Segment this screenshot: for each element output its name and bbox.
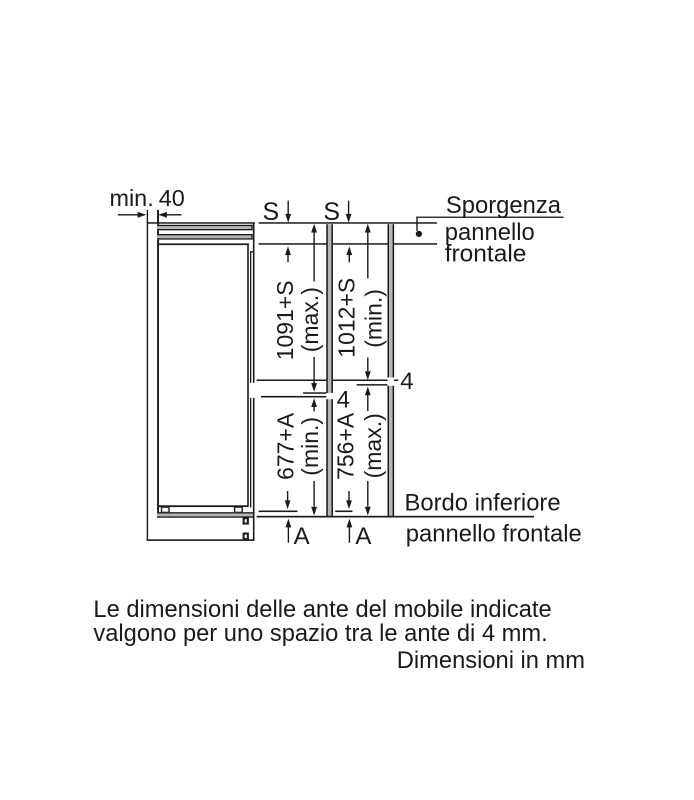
svg-text:Le dimensioni delle ante del m: Le dimensioni delle ante del mobile indi… [93,597,551,623]
svg-text:Dimensioni in mm: Dimensioni in mm [397,648,585,674]
svg-text:4: 4 [337,387,350,414]
svg-text:(max.): (max.) [360,413,386,478]
svg-text:756+A: 756+A [332,412,358,480]
svg-text:Sporgenza: Sporgenza [446,192,562,219]
svg-text:S: S [263,198,280,226]
svg-text:A: A [355,523,371,550]
svg-text:valgono per uno spazio tra le: valgono per uno spazio tra le ante di 4 … [93,621,547,647]
svg-text:1091+S: 1091+S [272,280,298,360]
svg-text:40: 40 [159,185,185,211]
svg-text:frontale: frontale [445,241,527,268]
svg-text:(max.): (max.) [297,287,323,352]
svg-text:1012+S: 1012+S [334,278,360,358]
svg-text:(min.): (min.) [297,417,323,476]
svg-text:(min.): (min.) [360,289,386,348]
svg-text:pannello frontale: pannello frontale [406,521,582,548]
svg-text:4: 4 [400,368,413,395]
svg-text:677+A: 677+A [272,412,298,480]
svg-text:S: S [323,198,340,226]
svg-text:A: A [294,523,310,550]
svg-text:min.: min. [110,185,154,211]
svg-text:Bordo inferiore: Bordo inferiore [405,490,561,517]
